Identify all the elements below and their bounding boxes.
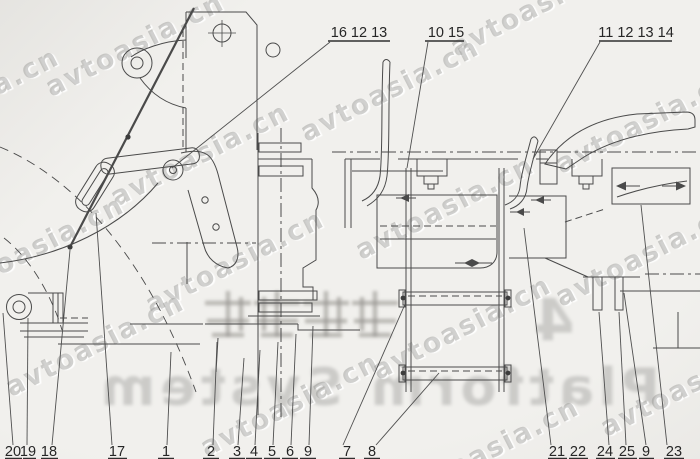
pivot-bracket-arm [0,147,238,392]
callout-leader [599,312,609,445]
callout-leader [96,213,112,445]
diagram-canvas: 16 12 1310 1511 12 13 142019181712345697… [0,0,700,459]
callout-label: 2 [207,444,215,459]
callout-leader [52,250,70,445]
handrails [362,60,551,210]
callout-leader [291,334,296,445]
callout-label: 5 [268,444,276,459]
callout-label: 19 [20,444,36,459]
callout-label: 6 [286,444,294,459]
callout-label: 4 [250,444,258,459]
callout-label: 3 [233,444,241,459]
callout-leader [213,342,217,445]
callout-label: 25 [619,444,635,459]
callouts-layer: 16 12 1310 1511 12 13 142019181712345697… [3,25,684,459]
mudflap-bracket [545,209,700,348]
parts-diagram-page: Platform System 4 avtoasia.cnavtoasia.cn… [0,0,700,459]
callout-label: 10 15 [428,25,464,41]
callout-label: 9 [642,444,650,459]
rear-bracket-panel [612,168,690,204]
access-ladder [399,168,511,392]
callout-label: 21 [549,444,565,459]
chassis-frame-lines [58,152,700,372]
callout-leader [619,312,626,445]
callout-leader [641,205,667,445]
callout-leader [407,42,428,168]
callout-label: 22 [570,444,586,459]
callout-label: 9 [304,444,312,459]
callout-label: 11 12 13 14 [598,25,674,41]
callout-leader [533,42,600,159]
callout-label: 20 [5,444,21,459]
callout-leader [167,352,171,445]
callout-leader [524,228,551,445]
callout-label: 8 [368,444,376,459]
callout-leader [624,293,646,445]
callout-leader [238,358,244,445]
tow-hook [7,293,89,337]
callout-label: 7 [343,444,351,459]
callout-leader [3,313,13,445]
callout-leader [376,373,439,445]
callout-label: 16 12 13 [331,25,387,41]
cab-side-plate [122,12,280,152]
callout-leader [172,42,330,168]
callout-label: 17 [109,444,125,459]
callout-label: 1 [162,444,170,459]
callout-label: 24 [597,444,613,459]
callout-leader [273,342,278,445]
callout-leader [309,326,313,445]
callout-label: 18 [41,444,57,459]
grab-rod [67,8,194,250]
callout-label: 23 [666,444,682,459]
fender [540,112,695,184]
